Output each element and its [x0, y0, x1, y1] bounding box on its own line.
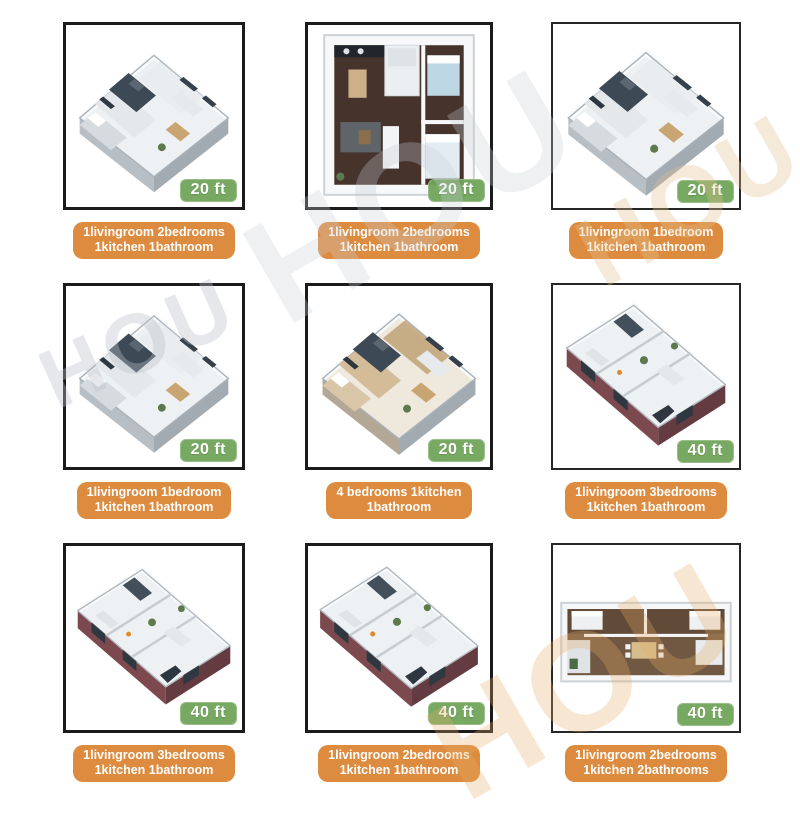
caption-line-1: 1livingroom 2bedrooms: [83, 225, 225, 240]
floorplan-card: 40 ft 1livingroom 2bedrooms 1kitchen 2ba…: [551, 543, 741, 782]
floorplan-card: 20 ft 1livingroom 2bedrooms 1kitchen 1ba…: [305, 22, 493, 259]
size-badge-label: 40 ft: [688, 442, 723, 459]
caption-line-2: 1kitchen 1bathroom: [328, 240, 470, 255]
size-badge-label: 20 ft: [191, 181, 226, 198]
room-caption: 1livingroom 2bedrooms 1kitchen 1bathroom: [73, 222, 235, 259]
caption-line-2: 1kitchen 1bathroom: [83, 240, 225, 255]
caption-line-2: 1kitchen 1bathroom: [87, 500, 222, 515]
floorplan-collage: HOU HOU HOU HOU: [0, 0, 800, 800]
size-badge: 40 ft: [677, 440, 734, 463]
floorplan-card: 20 ft 1livingroom 1bedroom 1kitchen 1bat…: [551, 22, 741, 259]
floorplan-image: 40 ft: [63, 543, 245, 733]
floorplan-card: 20 ft 1livingroom 1bedroom 1kitchen 1bat…: [63, 283, 245, 519]
size-badge-label: 40 ft: [191, 704, 226, 721]
caption-line-2: 1kitchen 1bathroom: [83, 763, 225, 778]
size-badge: 40 ft: [677, 703, 734, 726]
caption-line-2: 1bathroom: [336, 500, 461, 515]
size-badge-label: 20 ft: [688, 182, 723, 199]
caption-line-2: 1kitchen 1bathroom: [575, 500, 717, 515]
room-caption: 1livingroom 3bedrooms 1kitchen 1bathroom: [565, 482, 727, 519]
caption-line-1: 1livingroom 2bedrooms: [328, 225, 470, 240]
room-caption: 1livingroom 1bedroom 1kitchen 1bathroom: [569, 222, 724, 259]
size-badge: 20 ft: [180, 179, 237, 202]
size-badge: 40 ft: [180, 702, 237, 725]
room-caption: 4 bedrooms 1kitchen 1bathroom: [326, 482, 471, 519]
size-badge-label: 40 ft: [439, 704, 474, 721]
floorplan-card: 40 ft 1livingroom 2bedrooms 1kitchen 1ba…: [305, 543, 493, 782]
floorplan-image: 20 ft: [63, 22, 245, 210]
caption-line-1: 1livingroom 2bedrooms: [575, 748, 717, 763]
room-caption: 1livingroom 2bedrooms 1kitchen 2bathroom…: [565, 745, 727, 782]
size-badge-label: 20 ft: [439, 441, 474, 458]
room-caption: 1livingroom 2bedrooms 1kitchen 1bathroom: [318, 222, 480, 259]
floorplan-card: 40 ft 1livingroom 3bedrooms 1kitchen 1ba…: [63, 543, 245, 782]
caption-line-1: 1livingroom 1bedroom: [579, 225, 714, 240]
size-badge: 20 ft: [180, 439, 237, 462]
floorplan-image: 40 ft: [551, 543, 741, 733]
floorplan-image: 40 ft: [305, 543, 493, 733]
caption-line-1: 1livingroom 3bedrooms: [575, 485, 717, 500]
caption-line-2: 1kitchen 2bathrooms: [575, 763, 717, 778]
size-badge: 20 ft: [677, 180, 734, 203]
size-badge-label: 20 ft: [191, 441, 226, 458]
caption-line-2: 1kitchen 1bathroom: [328, 763, 470, 778]
caption-line-1: 1livingroom 1bedroom: [87, 485, 222, 500]
room-caption: 1livingroom 2bedrooms 1kitchen 1bathroom: [318, 745, 480, 782]
size-badge: 20 ft: [428, 439, 485, 462]
floorplan-card: 20 ft 1livingroom 2bedrooms 1kitchen 1ba…: [63, 22, 245, 259]
floorplan-card: 20 ft 4 bedrooms 1kitchen 1bathroom: [305, 283, 493, 519]
size-badge: 40 ft: [428, 702, 485, 725]
size-badge-label: 20 ft: [439, 181, 474, 198]
caption-line-1: 1livingroom 3bedrooms: [83, 748, 225, 763]
floorplan-image: 40 ft: [551, 283, 741, 470]
room-caption: 1livingroom 1bedroom 1kitchen 1bathroom: [77, 482, 232, 519]
caption-line-1: 4 bedrooms 1kitchen: [336, 485, 461, 500]
floorplan-card: 40 ft 1livingroom 3bedrooms 1kitchen 1ba…: [551, 283, 741, 519]
size-badge: 20 ft: [428, 179, 485, 202]
floorplan-image: 20 ft: [305, 283, 493, 470]
floorplan-image: 20 ft: [305, 22, 493, 210]
size-badge-label: 40 ft: [688, 705, 723, 722]
caption-line-2: 1kitchen 1bathroom: [579, 240, 714, 255]
floorplan-image: 20 ft: [63, 283, 245, 470]
caption-line-1: 1livingroom 2bedrooms: [328, 748, 470, 763]
floorplan-image: 20 ft: [551, 22, 741, 210]
room-caption: 1livingroom 3bedrooms 1kitchen 1bathroom: [73, 745, 235, 782]
